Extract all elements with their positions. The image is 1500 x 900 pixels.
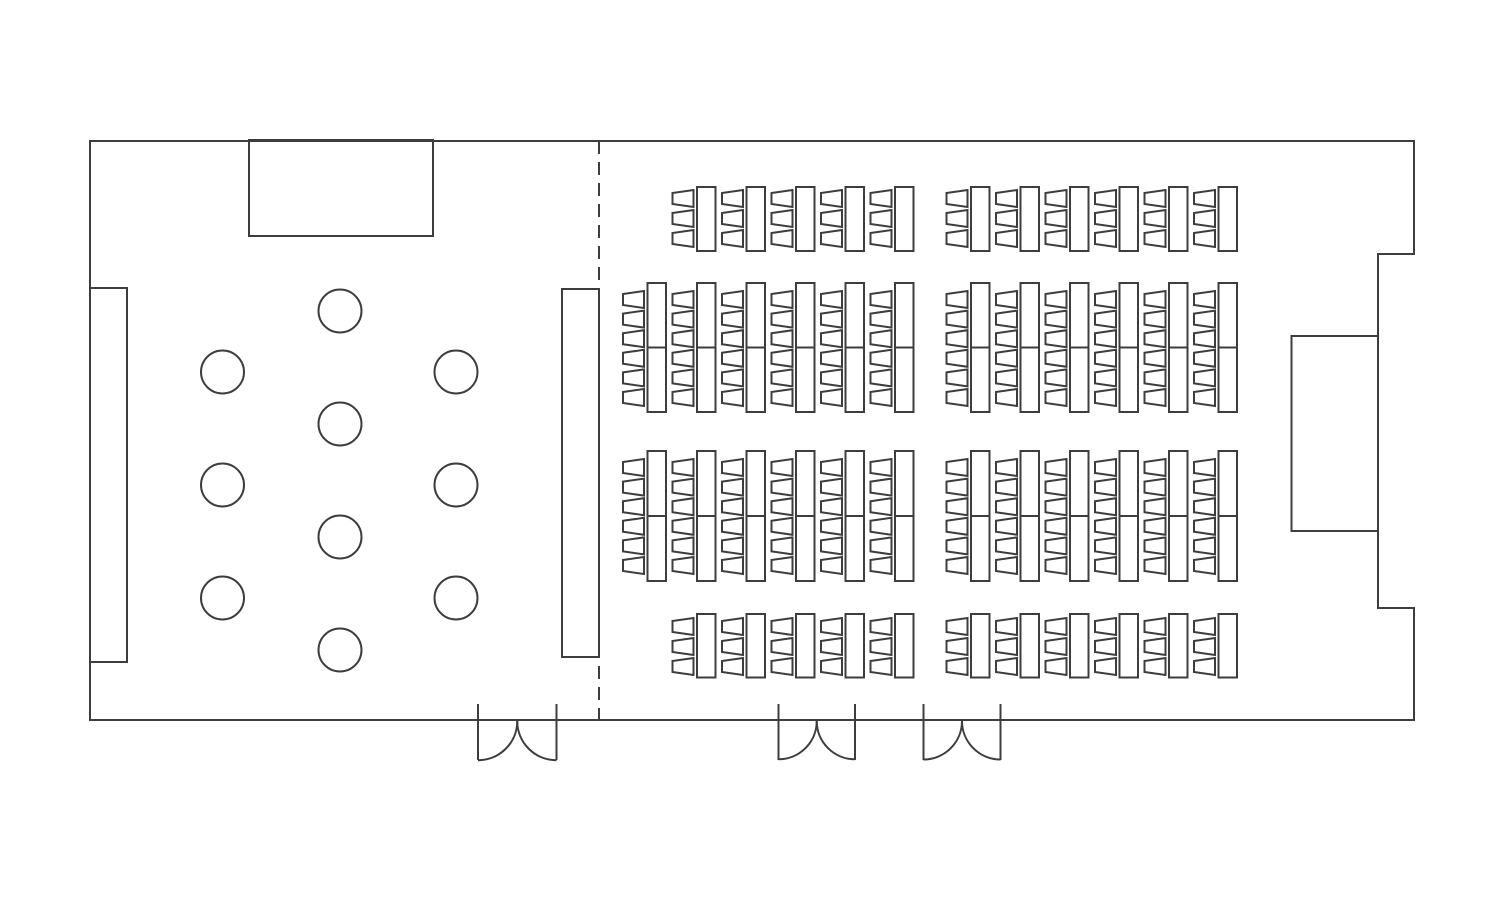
table (1219, 348, 1238, 413)
chair (821, 518, 842, 535)
chair (1194, 537, 1215, 554)
seating-unit (1095, 614, 1138, 678)
chair (821, 618, 842, 635)
chair (1194, 291, 1215, 308)
chair (996, 190, 1017, 207)
chair (947, 311, 968, 328)
chair (623, 479, 644, 496)
seating-unit (772, 283, 815, 412)
chair (1046, 210, 1067, 227)
chair (996, 518, 1017, 535)
double-door (924, 704, 1001, 760)
chair (947, 459, 968, 476)
seating-unit (1145, 187, 1188, 251)
chair (1145, 350, 1166, 367)
chair (1046, 557, 1067, 574)
chair (1046, 638, 1067, 655)
chair (996, 658, 1017, 675)
chair (947, 537, 968, 554)
chair (947, 389, 968, 406)
chair (996, 350, 1017, 367)
chair (772, 210, 793, 227)
seating-unit (1046, 614, 1089, 678)
chair (947, 369, 968, 386)
table (1169, 348, 1188, 413)
chair (623, 518, 644, 535)
right-wall-alcove (1292, 336, 1379, 531)
chair (871, 518, 892, 535)
chair (623, 350, 644, 367)
chair (722, 498, 743, 515)
chair (623, 557, 644, 574)
left-wall-counter (90, 288, 127, 662)
chair (1194, 350, 1215, 367)
table (796, 451, 815, 516)
stage-rect (249, 140, 433, 236)
chair (722, 518, 743, 535)
chair (1145, 311, 1166, 328)
door-swing-arc (517, 721, 556, 760)
table (895, 348, 914, 413)
chair (1145, 479, 1166, 496)
chair (947, 479, 968, 496)
chair (772, 658, 793, 675)
seating-unit (821, 283, 864, 412)
chair (821, 190, 842, 207)
chair (772, 190, 793, 207)
seating-band-row-4 (673, 614, 1238, 678)
cocktail-table-circle (201, 577, 244, 620)
floor-plan-canvas (0, 0, 1500, 900)
table (971, 283, 990, 348)
seating-unit (821, 614, 864, 678)
chair (821, 230, 842, 247)
seating-unit (1145, 451, 1188, 581)
seating-group-right (947, 283, 1238, 412)
table (1021, 614, 1040, 678)
chair (871, 190, 892, 207)
table (1070, 516, 1089, 581)
seating-unit (1194, 451, 1237, 581)
table (1070, 451, 1089, 516)
chair (772, 311, 793, 328)
table (1120, 614, 1139, 678)
chair (673, 638, 694, 655)
chair (673, 537, 694, 554)
seating-group-left (623, 451, 914, 581)
chair (1046, 350, 1067, 367)
chair (1095, 557, 1116, 574)
table (747, 187, 766, 251)
chair (947, 291, 968, 308)
chair (821, 658, 842, 675)
seating-unit (722, 283, 765, 412)
chair (996, 291, 1017, 308)
seating-unit (1145, 283, 1188, 412)
seating-group-right (947, 187, 1238, 251)
table (1169, 283, 1188, 348)
seating-unit (1095, 451, 1138, 581)
chair (1095, 369, 1116, 386)
table (747, 614, 766, 678)
chair (1046, 537, 1067, 554)
table (1021, 451, 1040, 516)
table (1219, 187, 1238, 251)
table (895, 451, 914, 516)
seating-group-right (947, 614, 1238, 678)
table (846, 283, 865, 348)
seating-unit (722, 187, 765, 251)
seating-unit (871, 451, 914, 581)
table (1021, 187, 1040, 251)
chair (871, 658, 892, 675)
chair (1095, 291, 1116, 308)
chair (821, 311, 842, 328)
chair (673, 350, 694, 367)
chair (947, 350, 968, 367)
chair (871, 498, 892, 515)
chair (821, 330, 842, 347)
table (895, 283, 914, 348)
seating-unit (1095, 187, 1138, 251)
seating-band-row-1 (673, 187, 1238, 251)
chair (996, 230, 1017, 247)
table (1021, 348, 1040, 413)
chair (821, 389, 842, 406)
chair (947, 638, 968, 655)
chair (722, 557, 743, 574)
chair (673, 330, 694, 347)
chair (623, 311, 644, 328)
chair (772, 498, 793, 515)
chair (1194, 459, 1215, 476)
chair (772, 618, 793, 635)
cocktail-table-circle (319, 403, 362, 446)
table (796, 187, 815, 251)
chair (1095, 230, 1116, 247)
chair (673, 190, 694, 207)
cocktail-table-circle (435, 351, 478, 394)
seating-band-row-2 (623, 283, 1237, 412)
chair (1095, 658, 1116, 675)
chair (1095, 618, 1116, 635)
seating-unit (623, 451, 666, 581)
chair (1046, 190, 1067, 207)
chair (1145, 230, 1166, 247)
seating-unit (722, 614, 765, 678)
chair (1046, 498, 1067, 515)
table (697, 187, 716, 251)
chair (1046, 291, 1067, 308)
chair (996, 210, 1017, 227)
table (796, 516, 815, 581)
table (747, 451, 766, 516)
door-swing-arc (779, 721, 817, 759)
table (1070, 283, 1089, 348)
seating-unit (996, 451, 1039, 581)
chair (722, 479, 743, 496)
table (747, 283, 766, 348)
table (697, 516, 716, 581)
table (1219, 614, 1238, 678)
seating-unit (871, 614, 914, 678)
chair (673, 311, 694, 328)
chair (722, 459, 743, 476)
cocktail-table-circle (319, 516, 362, 559)
chair (871, 389, 892, 406)
seating-unit (996, 283, 1039, 412)
table (648, 283, 667, 348)
chair (772, 291, 793, 308)
seating-unit (772, 451, 815, 581)
seating-unit (947, 187, 990, 251)
chair (1194, 479, 1215, 496)
chair (947, 190, 968, 207)
chair (1145, 518, 1166, 535)
chair (1194, 658, 1215, 675)
seating-group-left (673, 614, 914, 678)
divider-counter (562, 289, 599, 657)
chair (1095, 537, 1116, 554)
chair (1145, 190, 1166, 207)
table (1070, 187, 1089, 251)
chair (1194, 618, 1215, 635)
chair (996, 618, 1017, 635)
chair (1145, 618, 1166, 635)
seating-unit (996, 187, 1039, 251)
chair (871, 330, 892, 347)
chair (1046, 311, 1067, 328)
chair (1145, 330, 1166, 347)
chair (1095, 350, 1116, 367)
chair (1194, 369, 1215, 386)
table (846, 516, 865, 581)
seating-unit (772, 187, 815, 251)
door-swing-arc (478, 721, 517, 760)
chair (722, 210, 743, 227)
chair (1194, 638, 1215, 655)
chair (996, 330, 1017, 347)
table (846, 187, 865, 251)
chair (821, 350, 842, 367)
chair (623, 291, 644, 308)
table (1169, 451, 1188, 516)
chair (673, 459, 694, 476)
table (697, 283, 716, 348)
chair (1046, 479, 1067, 496)
chair (722, 190, 743, 207)
table (971, 614, 990, 678)
chair (673, 389, 694, 406)
chair (871, 291, 892, 308)
double-door (478, 704, 557, 760)
chair (623, 330, 644, 347)
table (648, 348, 667, 413)
chair (996, 498, 1017, 515)
chair (1194, 389, 1215, 406)
table (846, 451, 865, 516)
chair (1095, 638, 1116, 655)
seating-unit (871, 283, 914, 412)
table (971, 451, 990, 516)
table (895, 187, 914, 251)
chair (722, 618, 743, 635)
seating-unit (1095, 283, 1138, 412)
chair (1046, 618, 1067, 635)
seating-unit (772, 614, 815, 678)
chair (947, 330, 968, 347)
chair (1194, 330, 1215, 347)
chair (772, 459, 793, 476)
seating-unit (996, 614, 1039, 678)
chair (996, 638, 1017, 655)
chair (722, 389, 743, 406)
chair (821, 498, 842, 515)
chair (1095, 210, 1116, 227)
chair (1046, 518, 1067, 535)
table (796, 348, 815, 413)
table (1169, 516, 1188, 581)
seating-unit (947, 614, 990, 678)
chair (947, 658, 968, 675)
chair (1095, 498, 1116, 515)
table (697, 348, 716, 413)
chair (772, 350, 793, 367)
table (747, 516, 766, 581)
table (697, 451, 716, 516)
chair (673, 557, 694, 574)
chair (1046, 389, 1067, 406)
chair (772, 557, 793, 574)
chair (722, 291, 743, 308)
chair (821, 291, 842, 308)
seating-unit (1145, 614, 1188, 678)
chair (1194, 557, 1215, 574)
table (1169, 187, 1188, 251)
chair (1194, 498, 1215, 515)
chair (623, 389, 644, 406)
chair (947, 618, 968, 635)
chair (947, 557, 968, 574)
chair (722, 230, 743, 247)
table (1070, 614, 1089, 678)
seating-unit (1194, 614, 1237, 678)
cocktail-table-circle (319, 629, 362, 672)
seating-band-row-3 (623, 451, 1237, 581)
chair (871, 459, 892, 476)
chair (1194, 311, 1215, 328)
chair (722, 350, 743, 367)
seating-unit (673, 451, 716, 581)
chair (871, 210, 892, 227)
chair (722, 537, 743, 554)
seating-unit (1046, 451, 1089, 581)
chair (673, 210, 694, 227)
door-swing-arc (962, 721, 1001, 760)
table (971, 187, 990, 251)
seating-unit (722, 451, 765, 581)
chair (623, 537, 644, 554)
seating-unit (871, 187, 914, 251)
chair (722, 369, 743, 386)
chair (871, 638, 892, 655)
table (1021, 283, 1040, 348)
seating-group-right (947, 451, 1238, 581)
chair (1095, 330, 1116, 347)
chair (1194, 210, 1215, 227)
table (747, 348, 766, 413)
chair (772, 330, 793, 347)
table (1219, 451, 1238, 516)
seating-unit (947, 283, 990, 412)
chair (772, 537, 793, 554)
chair (871, 557, 892, 574)
chair (772, 518, 793, 535)
chair (722, 638, 743, 655)
chair (996, 557, 1017, 574)
cocktail-table-circle (435, 577, 478, 620)
table (971, 516, 990, 581)
table (1070, 348, 1089, 413)
table (697, 614, 716, 678)
chair (871, 230, 892, 247)
chair (1095, 518, 1116, 535)
chair (772, 389, 793, 406)
chair (722, 311, 743, 328)
chair (947, 210, 968, 227)
seating-unit (1046, 283, 1089, 412)
chair (673, 369, 694, 386)
seating-unit (1046, 187, 1089, 251)
chair (996, 369, 1017, 386)
double-door (779, 704, 856, 760)
chair (821, 210, 842, 227)
seating-unit (821, 187, 864, 251)
seating-unit (947, 451, 990, 581)
door-swing-arc (924, 721, 963, 760)
chair (1145, 369, 1166, 386)
chair (871, 618, 892, 635)
chair (673, 618, 694, 635)
chair (1145, 537, 1166, 554)
chair (871, 311, 892, 328)
chair (996, 389, 1017, 406)
table (971, 348, 990, 413)
chair (722, 658, 743, 675)
chair (947, 498, 968, 515)
table (846, 614, 865, 678)
table (1021, 516, 1040, 581)
chair (623, 498, 644, 515)
chair (1095, 311, 1116, 328)
chair (1145, 498, 1166, 515)
chair (673, 291, 694, 308)
chair (673, 230, 694, 247)
chair (1095, 190, 1116, 207)
cocktail-table-circle (201, 464, 244, 507)
chair (772, 369, 793, 386)
chair (996, 311, 1017, 328)
table (648, 451, 667, 516)
seating-unit (1194, 283, 1237, 412)
chair (996, 479, 1017, 496)
chair (673, 658, 694, 675)
chair (871, 350, 892, 367)
chair (1145, 291, 1166, 308)
chair (1194, 190, 1215, 207)
seating-unit (673, 614, 716, 678)
chair (871, 537, 892, 554)
